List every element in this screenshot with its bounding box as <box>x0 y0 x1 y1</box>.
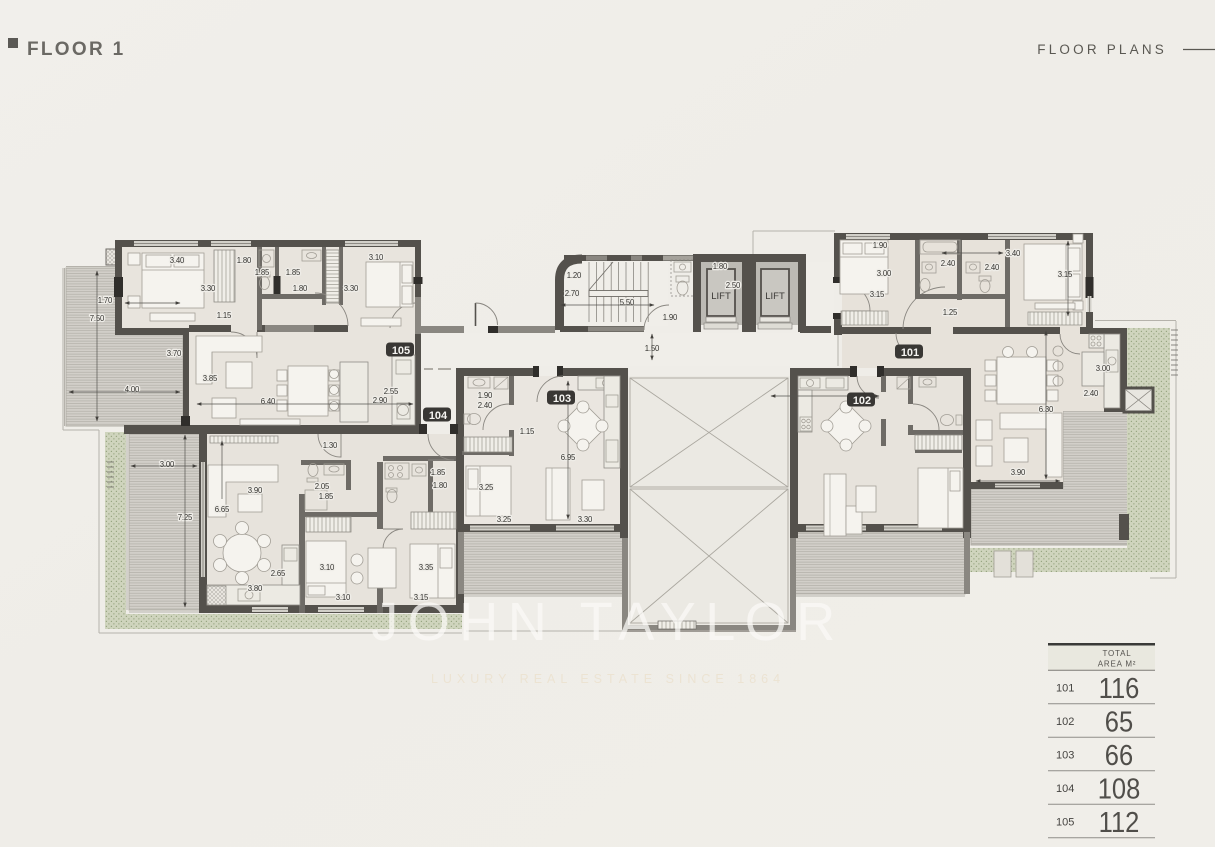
svg-text:66: 66 <box>1105 738 1133 771</box>
svg-text:5.50: 5.50 <box>620 298 635 307</box>
svg-text:1.15: 1.15 <box>520 427 535 436</box>
svg-text:65: 65 <box>1105 705 1133 738</box>
svg-text:104: 104 <box>429 410 448 422</box>
svg-text:105: 105 <box>1056 817 1074 829</box>
svg-text:6.65: 6.65 <box>215 505 230 514</box>
svg-text:2.50: 2.50 <box>726 281 741 290</box>
svg-text:108: 108 <box>1098 772 1141 805</box>
svg-text:112: 112 <box>1099 805 1140 838</box>
svg-text:3.00: 3.00 <box>877 269 892 278</box>
svg-text:3.25: 3.25 <box>497 515 512 524</box>
svg-text:4.00: 4.00 <box>125 385 140 394</box>
svg-text:2.40: 2.40 <box>1084 389 1099 398</box>
svg-text:102: 102 <box>853 395 871 407</box>
svg-text:101: 101 <box>901 347 919 359</box>
svg-text:102: 102 <box>1056 716 1074 728</box>
svg-text:116: 116 <box>1099 671 1140 704</box>
svg-text:1.80: 1.80 <box>713 262 728 271</box>
svg-text:3.10: 3.10 <box>336 593 351 602</box>
svg-text:103: 103 <box>1056 750 1074 762</box>
svg-text:3.30: 3.30 <box>344 284 359 293</box>
svg-text:1.25: 1.25 <box>943 308 958 317</box>
svg-text:2.40: 2.40 <box>941 259 956 268</box>
svg-text:3.30: 3.30 <box>201 284 216 293</box>
svg-text:1.80: 1.80 <box>293 284 308 293</box>
svg-text:1.80: 1.80 <box>237 256 252 265</box>
svg-text:3.40: 3.40 <box>1006 249 1021 258</box>
svg-text:LIFT: LIFT <box>765 291 785 302</box>
svg-text:6.30: 6.30 <box>1039 405 1054 414</box>
svg-text:2.55: 2.55 <box>384 387 399 396</box>
svg-text:1.70: 1.70 <box>98 296 113 305</box>
svg-text:3.15: 3.15 <box>870 290 885 299</box>
svg-text:1.90: 1.90 <box>873 241 888 250</box>
svg-text:3.35: 3.35 <box>419 563 434 572</box>
svg-text:3.85: 3.85 <box>203 374 218 383</box>
svg-text:FLOOR PLANS: FLOOR PLANS <box>1037 42 1167 57</box>
svg-text:6.40: 6.40 <box>261 397 276 406</box>
svg-text:1.90: 1.90 <box>663 313 678 322</box>
svg-text:1.20: 1.20 <box>567 271 582 280</box>
svg-text:7.50: 7.50 <box>90 314 105 323</box>
svg-text:3.10: 3.10 <box>369 253 384 262</box>
svg-text:3.00: 3.00 <box>1096 364 1111 373</box>
svg-text:3.10: 3.10 <box>320 563 335 572</box>
svg-text:1.50: 1.50 <box>645 344 660 353</box>
svg-text:7.25: 7.25 <box>178 513 193 522</box>
svg-text:TOTAL: TOTAL <box>1102 649 1131 658</box>
svg-text:LIFT: LIFT <box>711 291 731 302</box>
svg-text:3.80: 3.80 <box>248 584 263 593</box>
svg-text:2.40: 2.40 <box>985 263 1000 272</box>
svg-text:101: 101 <box>1056 683 1074 695</box>
svg-text:FLOOR 1: FLOOR 1 <box>27 39 125 60</box>
svg-text:3.00: 3.00 <box>160 460 175 469</box>
svg-text:2.40: 2.40 <box>478 401 493 410</box>
svg-text:3.40: 3.40 <box>170 256 185 265</box>
svg-text:103: 103 <box>553 393 571 405</box>
svg-text:2.65: 2.65 <box>271 569 286 578</box>
svg-text:3.15: 3.15 <box>1058 270 1073 279</box>
svg-text:6.95: 6.95 <box>561 453 576 462</box>
svg-text:LUXURY REAL ESTATE SINCE 1864: LUXURY REAL ESTATE SINCE 1864 <box>431 672 785 686</box>
svg-text:3.90: 3.90 <box>1011 468 1026 477</box>
svg-text:2.05: 2.05 <box>315 482 330 491</box>
svg-text:1.85: 1.85 <box>255 268 270 277</box>
svg-text:1.90: 1.90 <box>478 391 493 400</box>
svg-text:3.25: 3.25 <box>479 483 494 492</box>
svg-text:104: 104 <box>1056 783 1074 795</box>
svg-text:2.70: 2.70 <box>565 289 580 298</box>
svg-text:3.70: 3.70 <box>167 349 182 358</box>
svg-text:1.85: 1.85 <box>431 468 446 477</box>
svg-text:AREA M²: AREA M² <box>1098 660 1137 669</box>
svg-text:1.85: 1.85 <box>319 492 334 501</box>
svg-text:3.30: 3.30 <box>578 515 593 524</box>
svg-text:JOHN TAYLOR: JOHN TAYLOR <box>371 592 845 652</box>
svg-text:1.30: 1.30 <box>323 441 338 450</box>
svg-text:1.85: 1.85 <box>286 268 301 277</box>
svg-text:105: 105 <box>392 345 410 357</box>
svg-text:3.90: 3.90 <box>248 486 263 495</box>
svg-text:1.15: 1.15 <box>217 311 232 320</box>
svg-text:1.80: 1.80 <box>433 481 448 490</box>
